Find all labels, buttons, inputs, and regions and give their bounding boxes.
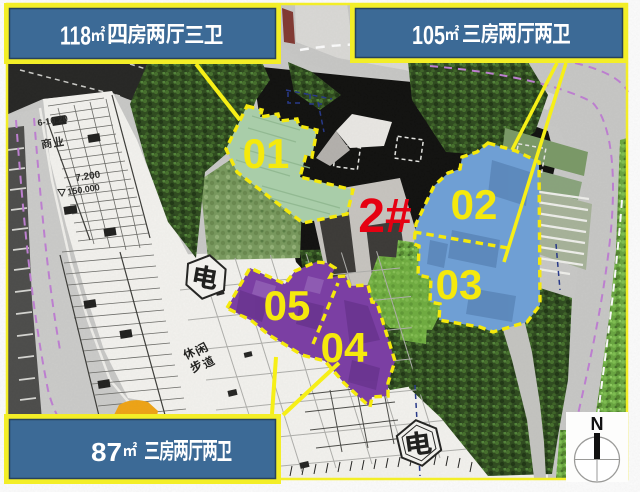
svg-text:105: 105 xyxy=(412,20,445,50)
svg-text:N: N xyxy=(591,414,604,434)
svg-text:118: 118 xyxy=(60,21,91,51)
svg-text:2#: 2# xyxy=(358,190,411,243)
svg-text:04: 04 xyxy=(321,324,368,371)
svg-text:03: 03 xyxy=(436,261,483,308)
svg-text:02: 02 xyxy=(451,181,498,228)
svg-text:87: 87 xyxy=(91,437,122,467)
svg-text:05: 05 xyxy=(264,282,311,329)
svg-text:01: 01 xyxy=(243,130,290,177)
